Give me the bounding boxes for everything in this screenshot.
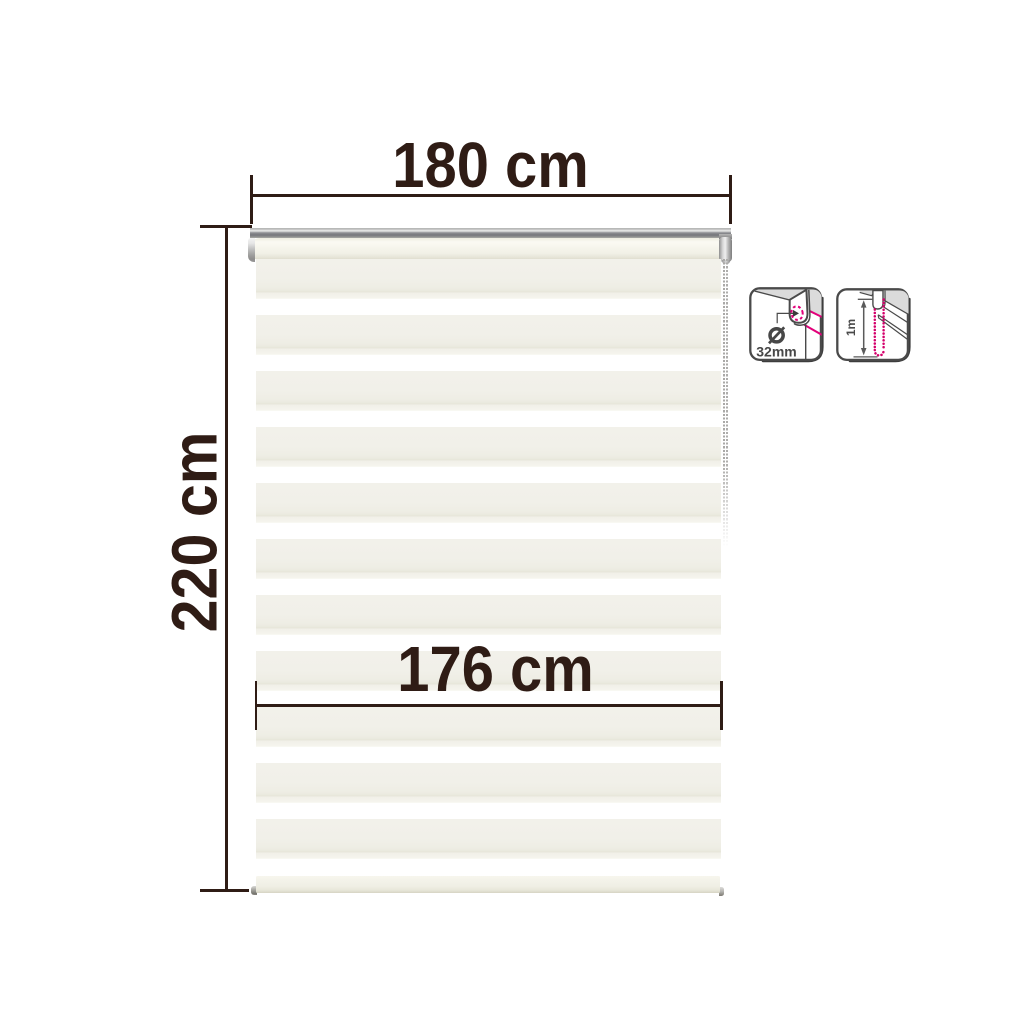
svg-text:32mm: 32mm xyxy=(756,343,796,359)
svg-text:1m: 1m xyxy=(844,319,858,336)
